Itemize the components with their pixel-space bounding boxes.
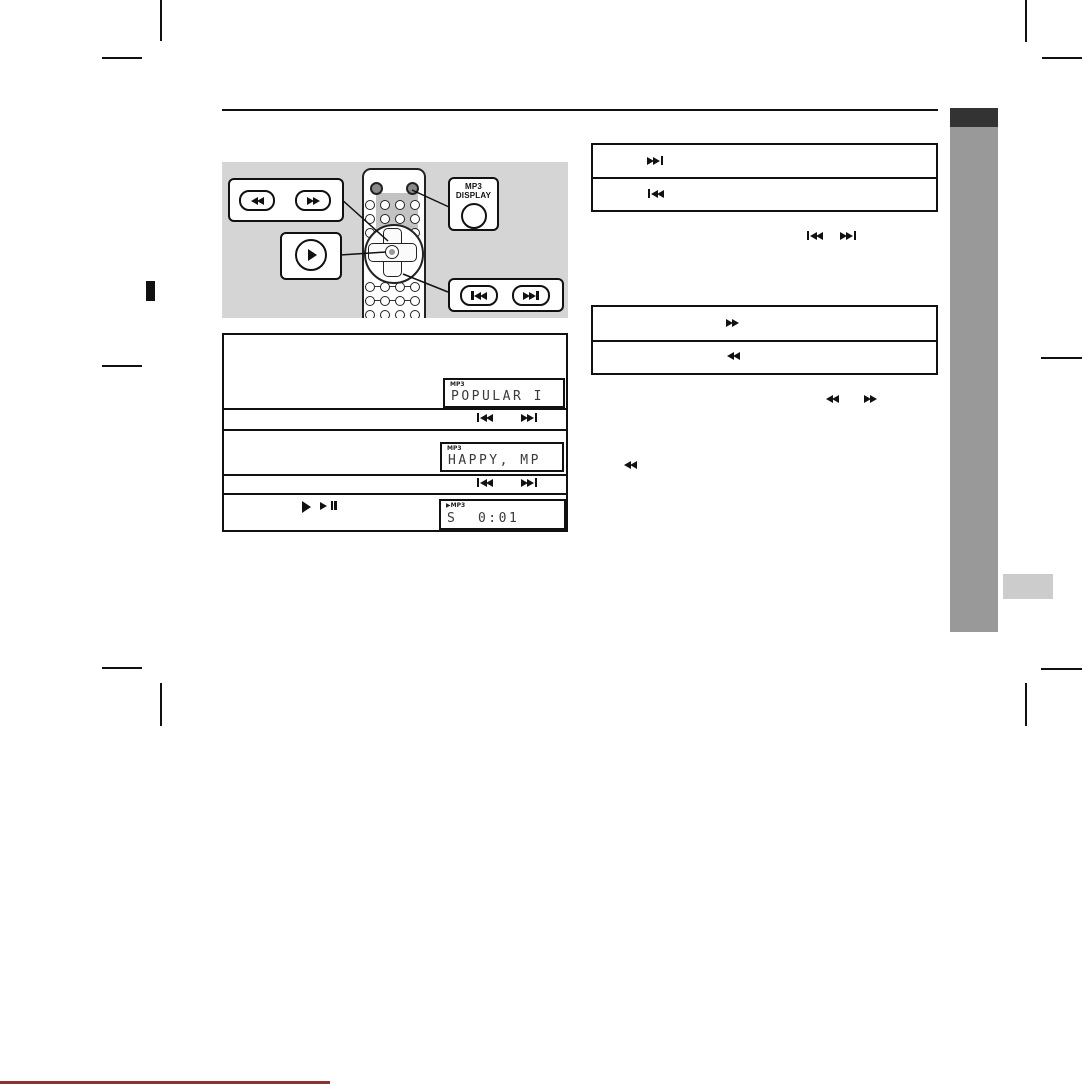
table-divider: [593, 340, 936, 342]
remote-button: [365, 296, 375, 306]
callout-search-buttons: [228, 178, 344, 222]
crop-mark: [102, 365, 142, 367]
fast-forward-icon: [307, 197, 320, 205]
lcd-track-text: S 0:01: [447, 511, 560, 526]
remote-button: [365, 310, 375, 318]
crop-mark: [1025, 683, 1027, 726]
skip-back-icon: [806, 231, 823, 240]
rewind-icon: [624, 461, 637, 469]
callout-skip-buttons: [448, 278, 564, 312]
mp3-display-label: MP3 DISPLAY: [450, 182, 497, 200]
mp3-display-label-line1: MP3: [450, 182, 497, 191]
table-divider: [593, 177, 936, 179]
chapter-side-band: [950, 127, 998, 632]
rewind-icon: [727, 352, 740, 360]
steps-table-left: MP3 POPULAR I MP3 HAPPY, MP ▶MP3 S 0:01: [222, 333, 568, 532]
skip-back-icon: [647, 189, 664, 198]
lcd-file-display: MP3 HAPPY, MP: [440, 442, 564, 472]
crop-mark: [160, 0, 162, 41]
table-divider: [224, 474, 566, 476]
play-icon: [302, 501, 311, 513]
skip-forward-button: [512, 285, 550, 306]
remote-button: [395, 310, 405, 318]
manual-page: MP3 DISPLAY MP3 POPULAR I: [0, 0, 1082, 1084]
skip-forward-icon: [523, 291, 540, 300]
mp3-indicator: MP3: [447, 445, 462, 452]
remote-button: [365, 214, 375, 224]
steps-table-skip: [591, 143, 938, 212]
remote-button: [380, 200, 390, 210]
mp3-display-button: [461, 203, 487, 229]
remote-button: [380, 296, 390, 306]
remote-button: [410, 296, 420, 306]
fast-forward-icon: [864, 395, 877, 403]
rewind-button: [239, 190, 275, 211]
crop-mark: [102, 667, 142, 669]
crop-mark: [1025, 0, 1027, 42]
remote-button: [395, 214, 405, 224]
lcd-folder-text: POPULAR I: [451, 389, 559, 404]
lcd-folder-display: MP3 POPULAR I: [443, 378, 565, 408]
remote-button: [365, 200, 375, 210]
table-divider: [224, 429, 566, 431]
skip-forward-icon: [521, 413, 538, 422]
remote-button: [410, 282, 420, 292]
crop-mark: [1042, 57, 1082, 59]
skip-forward-icon: [840, 231, 857, 240]
spine-mark: [146, 281, 155, 301]
skip-back-icon: [471, 291, 488, 300]
lcd-track-display: ▶MP3 S 0:01: [439, 499, 566, 530]
remote-button: [410, 200, 420, 210]
rewind-icon: [826, 395, 839, 403]
remote-button: [380, 214, 390, 224]
remote-illustration-panel: MP3 DISPLAY: [222, 162, 568, 318]
crop-mark: [1041, 668, 1082, 670]
skip-back-icon: [476, 413, 493, 422]
steps-table-search: [591, 305, 938, 375]
mp3-display-label-line2: DISPLAY: [450, 191, 497, 200]
page-top-rule: [222, 109, 938, 111]
callout-play-button: [280, 232, 342, 280]
fast-forward-button: [295, 190, 331, 211]
skip-back-button: [460, 285, 498, 306]
crop-mark: [160, 683, 162, 726]
table-divider: [224, 493, 566, 495]
remote-button: [380, 310, 390, 318]
play-button: [295, 239, 327, 271]
play-mp3-indicator: ▶MP3: [446, 502, 465, 509]
skip-forward-icon: [521, 478, 538, 487]
play-pause-icon: [320, 501, 337, 510]
table-divider: [224, 408, 566, 410]
play-icon: [308, 249, 317, 261]
rewind-icon: [251, 197, 264, 205]
remote-button: [370, 182, 383, 195]
mp3-indicator: MP3: [450, 381, 465, 388]
remote-button: [410, 214, 420, 224]
chapter-tab-dark: [950, 108, 998, 127]
fast-forward-icon: [726, 319, 739, 327]
skip-forward-icon: [647, 156, 664, 165]
lcd-file-text: HAPPY, MP: [448, 453, 558, 468]
remote-button: [410, 310, 420, 318]
remote-button: [365, 282, 375, 292]
callout-mp3-display-button: MP3 DISPLAY: [448, 177, 499, 231]
crop-mark: [102, 57, 142, 59]
remote-button: [395, 200, 405, 210]
crop-mark: [1041, 357, 1082, 359]
remote-button: [406, 182, 419, 195]
dpad-center-dot: [389, 249, 395, 255]
remote-button: [395, 296, 405, 306]
page-number-tab: [1003, 574, 1053, 599]
skip-back-icon: [476, 478, 493, 487]
